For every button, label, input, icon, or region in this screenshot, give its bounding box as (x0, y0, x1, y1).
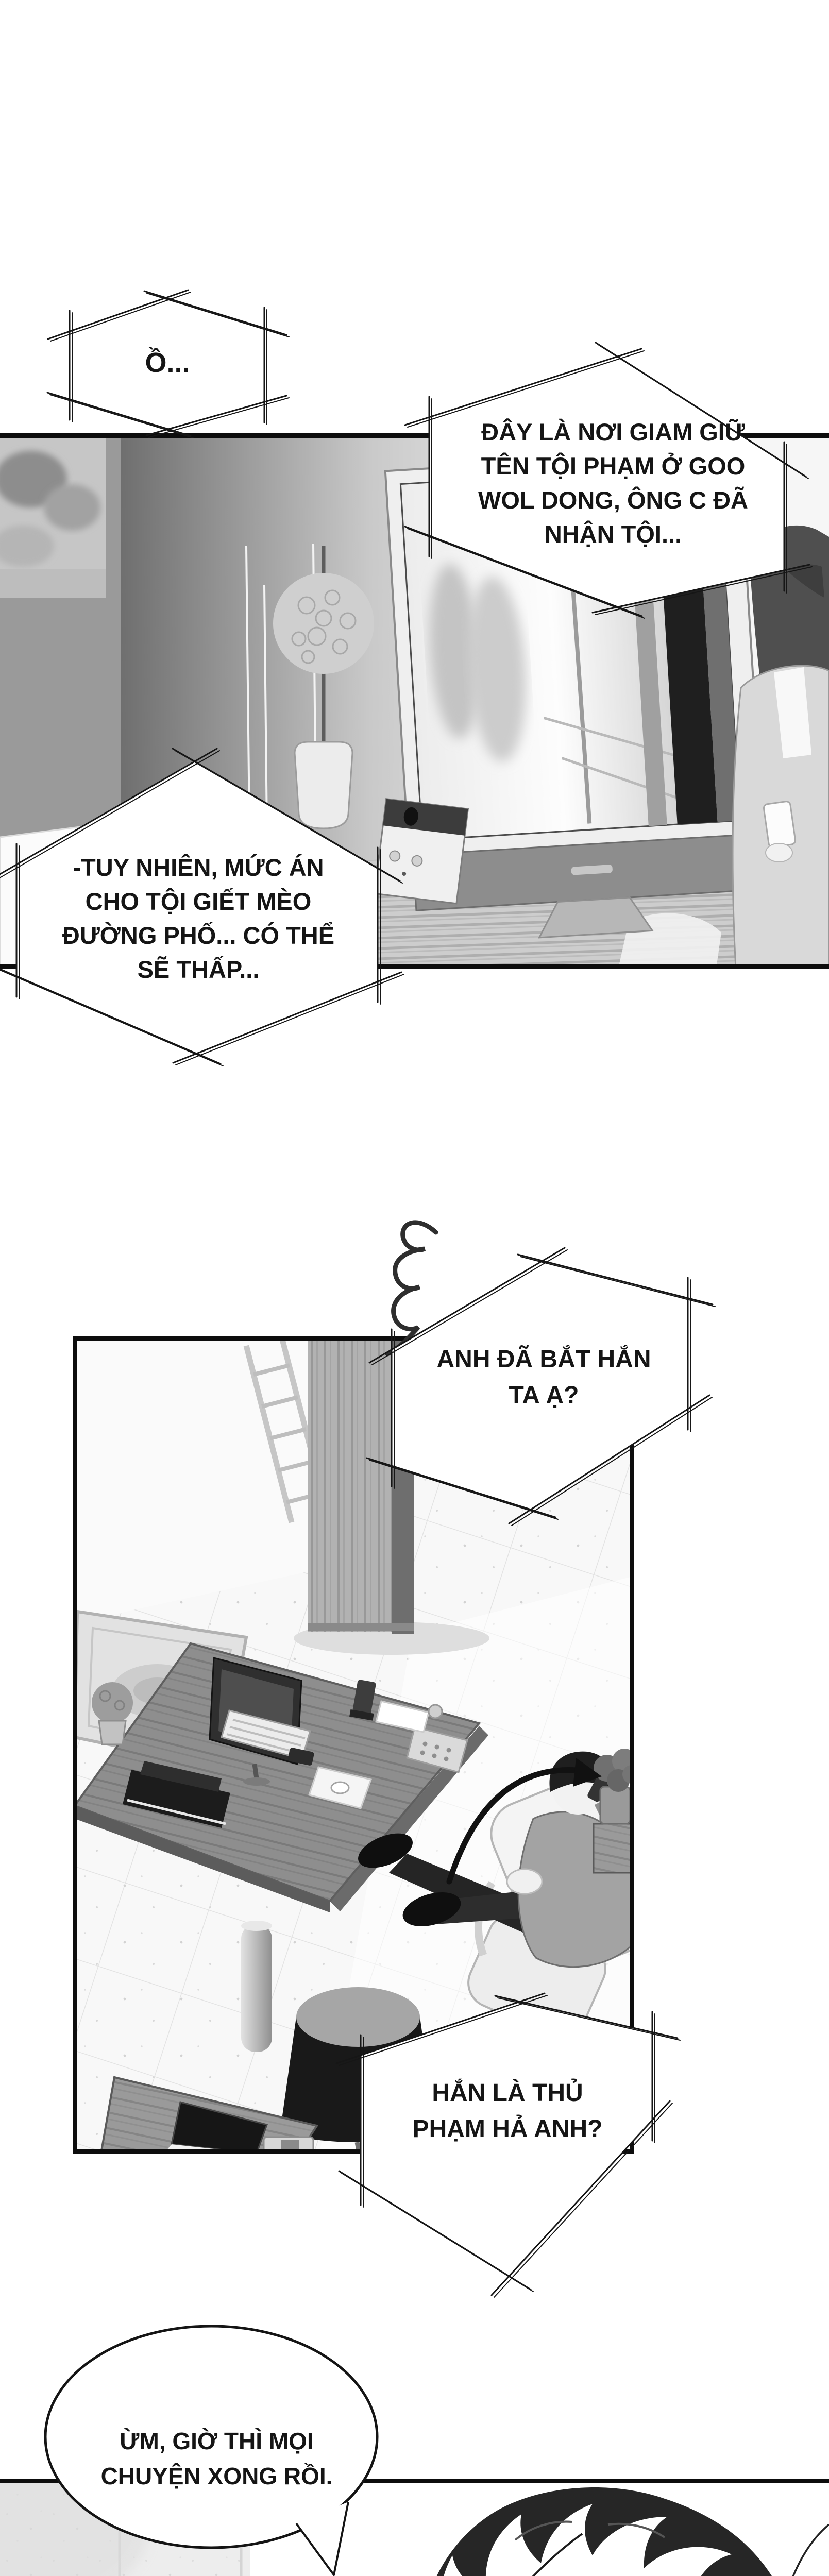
speech-text-question-culprit: HẮN LÀ THỦ PHẠM HẢ ANH? (361, 2075, 654, 2147)
paper-in-hand (763, 801, 796, 848)
speech-text-news-2: -TUY NHIÊN, MỨC ÁN CHO TỘI GIẾT MÈO ĐƯỜN… (18, 851, 379, 987)
speech-line: PHẠM HẢ ANH? (361, 2111, 654, 2147)
speech-line: SẼ THẤP... (18, 953, 379, 987)
speech-line: NHẬN TỘI... (435, 517, 791, 551)
speech-line: ỪM, GIỜ THÌ MỌI (50, 2424, 383, 2459)
speech-line: CHO TỘI GIẾT MÈO (18, 885, 379, 919)
speech-line: WOL DONG, ÔNG C ĐÃ (435, 483, 791, 517)
speech-line: ANH ĐÃ BẮT HẮN (396, 1342, 692, 1378)
speech-line: HẮN LÀ THỦ (361, 2075, 654, 2111)
desk-leg (241, 1921, 272, 2052)
comic-artwork (0, 0, 829, 2576)
speech-line: ĐƯỜNG PHỐ... CÓ THỂ (18, 919, 379, 953)
wall-art-painting (0, 435, 106, 598)
comic-page: Ồ... ĐÂY LÀ NƠI GIAM GIỮ TÊN TỘI PHẠM Ở … (0, 0, 829, 2576)
speech-text-answer-done: ỪM, GIỜ THÌ MỌI CHUYỆN XONG RỒI. (50, 2424, 383, 2494)
speech-line: CHUYỆN XONG RỒI. (50, 2459, 383, 2494)
cup (429, 1705, 442, 1718)
speech-text-question-caught: ANH ĐÃ BẮT HẮN TA Ạ? (396, 1342, 692, 1414)
speech-line: Ồ... (70, 344, 265, 381)
speech-line: TA Ạ? (396, 1378, 692, 1414)
speaker-box (375, 799, 468, 904)
speech-text-oh: Ồ... (70, 344, 265, 381)
speech-line: -TUY NHIÊN, MỨC ÁN (18, 851, 379, 885)
speech-text-news-1: ĐÂY LÀ NƠI GIAM GIỮ TÊN TỘI PHẠM Ở GOO W… (435, 415, 791, 551)
panel2-border-left (73, 1336, 77, 2154)
speech-line: TÊN TỘI PHẠM Ở GOO (435, 449, 791, 483)
speech-line: ĐÂY LÀ NƠI GIAM GIỮ (435, 415, 791, 449)
